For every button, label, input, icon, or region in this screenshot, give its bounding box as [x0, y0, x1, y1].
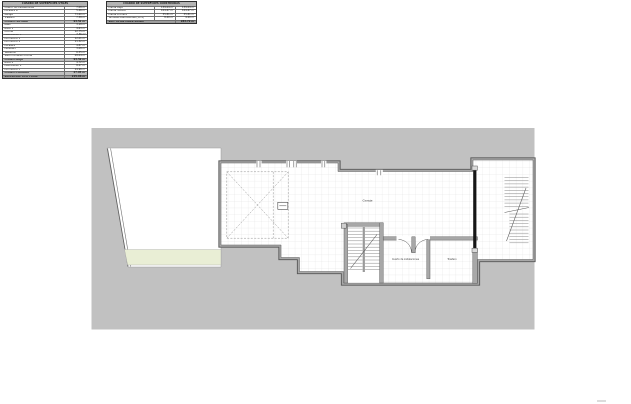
stair-corner-column [341, 223, 346, 228]
black-wall [473, 170, 476, 250]
stair-divider-wall [363, 227, 365, 272]
room-partition-wall [427, 240, 430, 279]
corner-watermark [597, 400, 606, 402]
main-stair [341, 223, 383, 283]
room-label-storage: Trastero [447, 258, 457, 261]
door-center-post [412, 237, 415, 253]
room-label-garage: Garaje [363, 199, 373, 203]
room-label-utility: Cuarto de instalaciones [392, 258, 420, 261]
floor-plan: Garaje Cuarto de instalaciones Trastero [0, 0, 631, 404]
terrace-strip [125, 250, 222, 266]
